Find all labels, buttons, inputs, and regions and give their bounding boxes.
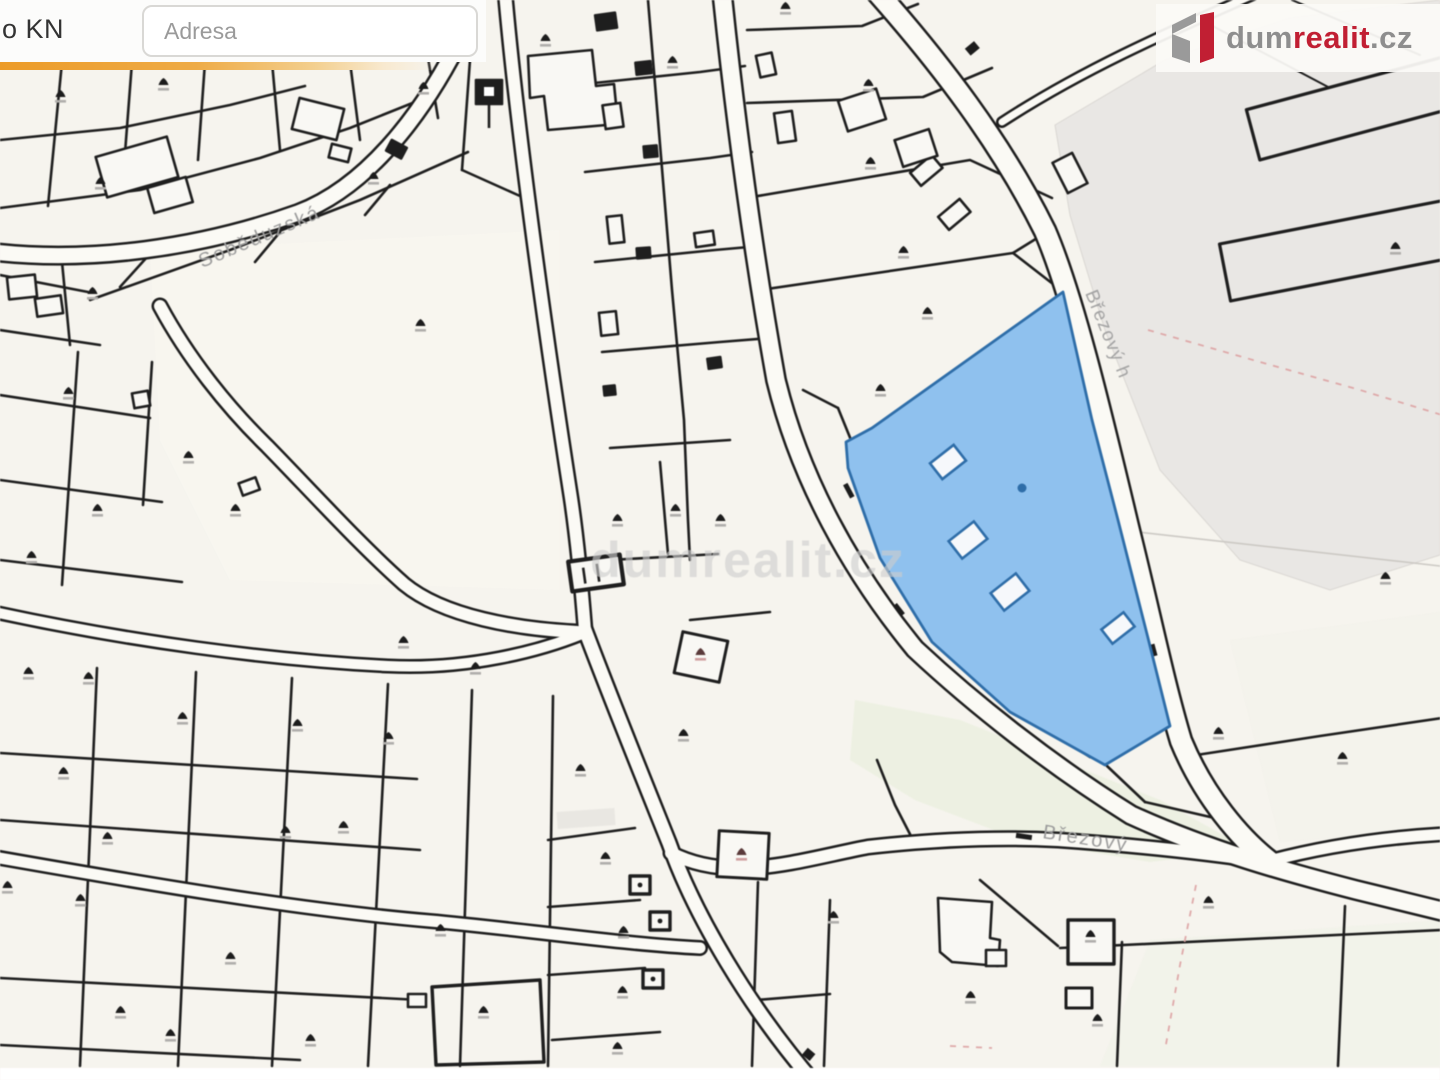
dumrealit-logo: dumrealit.cz xyxy=(1156,4,1440,72)
accent-bar xyxy=(0,62,436,70)
map-viewer: Soběduzská Březový h Březový dumrealit.c… xyxy=(0,0,1440,1080)
logo-text-suffix: .cz xyxy=(1370,20,1413,55)
cadastral-map[interactable]: Soběduzská Březový h Březový dumrealit.c… xyxy=(0,0,1440,1080)
map-watermark: dumrealit.cz xyxy=(590,532,906,588)
layer-label: o KN xyxy=(2,14,64,45)
logo-text-accent: realit xyxy=(1293,20,1370,55)
map-edge-strip xyxy=(0,1068,1440,1080)
logo-text-prefix: dum xyxy=(1226,20,1293,55)
address-search-input[interactable] xyxy=(142,5,478,57)
logo-text: dumrealit.cz xyxy=(1226,20,1413,56)
map-toolbar: o KN xyxy=(0,0,486,62)
dumrealit-house-icon xyxy=(1170,11,1218,65)
